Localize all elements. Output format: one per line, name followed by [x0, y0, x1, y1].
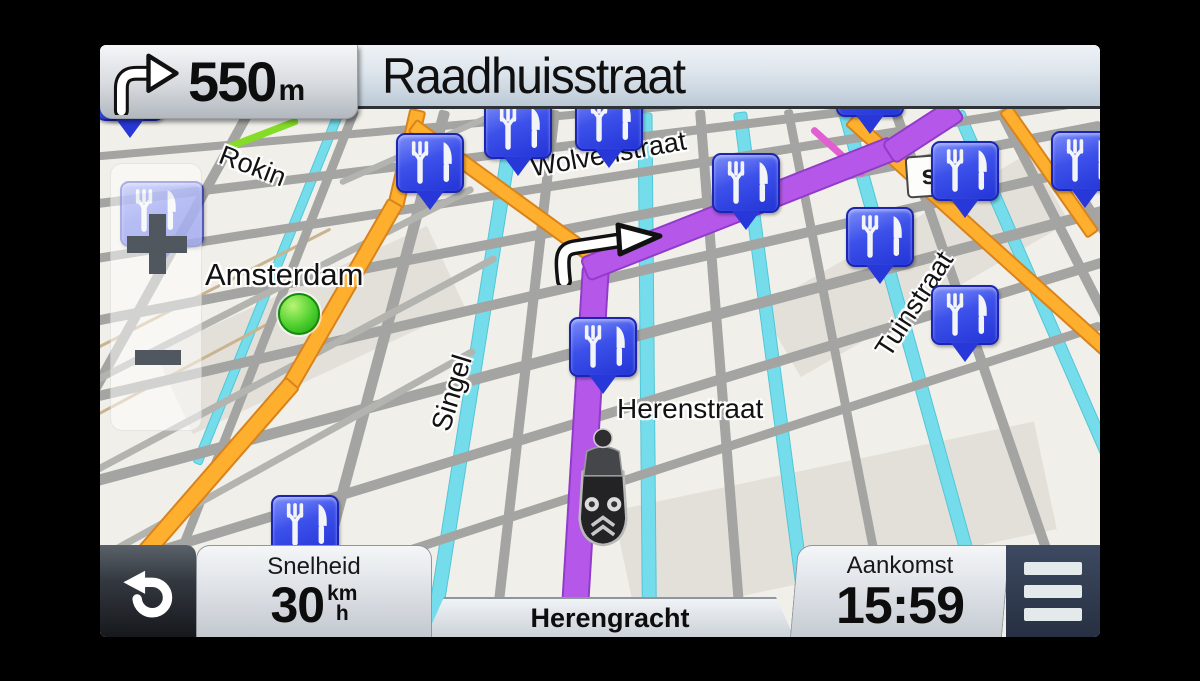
navigation-screen: Amsterdam Rokin Wolvenstraat Singel Here… [100, 45, 1100, 637]
arrival-label: Aankomst [794, 552, 1006, 580]
turn-distance-unit: m [278, 74, 305, 108]
vehicle-position-icon [572, 427, 634, 549]
next-street-name: Raadhuisstraat [382, 47, 685, 105]
restaurant-poi-pin[interactable] [931, 285, 999, 345]
restaurant-poi-pin[interactable] [846, 207, 914, 267]
zoom-out-button[interactable] [135, 350, 181, 365]
hamburger-menu-icon [1024, 585, 1082, 598]
back-arrow-icon [119, 562, 177, 620]
arrival-panel[interactable]: Aankomst 15:59 [794, 545, 1006, 637]
current-street-bar[interactable]: Herengracht [426, 597, 794, 637]
speed-unit-top: km [327, 584, 357, 604]
turn-distance: 550 [188, 49, 275, 114]
arrival-time: 15:59 [794, 580, 1006, 632]
fork-knife-icon [717, 157, 775, 207]
fork-knife-icon [489, 103, 547, 153]
restaurant-poi-pin[interactable] [1051, 131, 1100, 191]
speed-value: 30 [271, 582, 325, 628]
city-marker-dot [278, 293, 320, 335]
fork-knife-icon [276, 499, 334, 549]
current-street-name: Herengracht [530, 603, 689, 633]
speed-panel[interactable]: Snelheid 30 km h [196, 545, 432, 637]
hamburger-menu-icon [1024, 562, 1082, 575]
zoom-control-strip [110, 163, 202, 431]
speed-unit: km h [327, 584, 357, 624]
menu-button[interactable] [1006, 545, 1100, 637]
restaurant-poi-pin[interactable] [396, 133, 464, 193]
restaurant-poi-pin[interactable] [712, 153, 780, 213]
fork-knife-icon [574, 321, 632, 371]
city-label: Amsterdam [205, 257, 363, 293]
restaurant-poi-pin[interactable] [931, 141, 999, 201]
plus-icon [149, 214, 166, 274]
maneuver-arrow-icon [548, 221, 674, 285]
back-button[interactable] [100, 545, 196, 637]
fork-knife-icon [1056, 135, 1100, 185]
restaurant-poi-pin[interactable] [569, 317, 637, 377]
next-street-bar[interactable]: Raadhuisstraat [350, 45, 1100, 109]
speed-unit-bottom: h [336, 604, 349, 624]
canal-line [638, 112, 658, 637]
fork-knife-icon [936, 289, 994, 339]
fork-knife-icon [851, 211, 909, 261]
turn-preview-button[interactable]: 550 m [100, 45, 358, 119]
fork-knife-icon [401, 137, 459, 187]
zoom-in-button[interactable] [125, 212, 189, 276]
hamburger-menu-icon [1024, 608, 1082, 621]
turn-right-arrow-icon [110, 49, 180, 115]
street-label-herenstraat: Herenstraat [617, 393, 763, 425]
fork-knife-icon [936, 145, 994, 195]
